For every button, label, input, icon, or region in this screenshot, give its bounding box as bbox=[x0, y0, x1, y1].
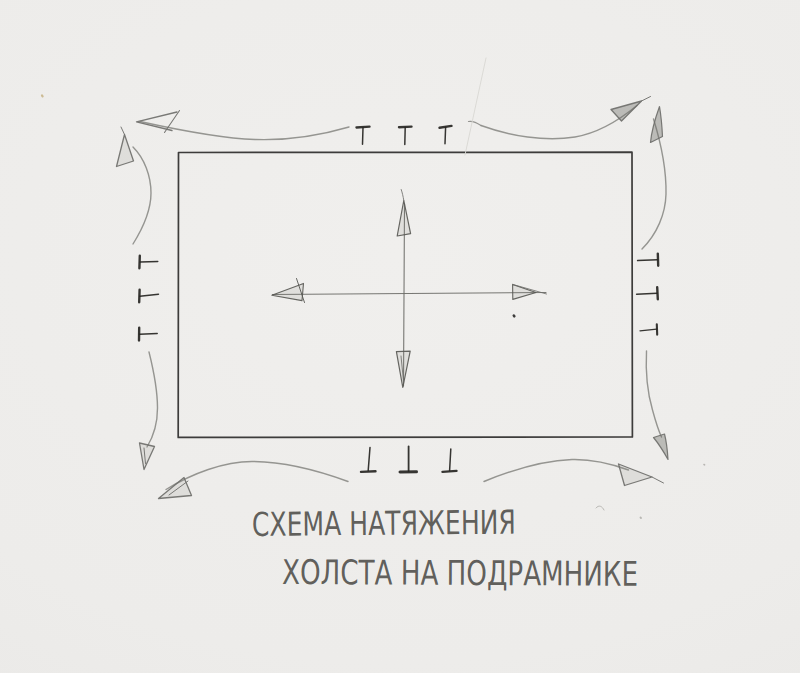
arrowhead-bottom-left-horizontal bbox=[159, 478, 192, 499]
arrowhead-top-left-vertical-flick bbox=[121, 127, 125, 135]
center-arrow-up-head bbox=[397, 201, 410, 237]
canvas-outline bbox=[178, 152, 632, 437]
paper-scratch bbox=[465, 58, 486, 155]
caption-line-1: СХЕМА НАТЯЖЕНИЯ bbox=[252, 503, 516, 544]
paper-speck-tan bbox=[42, 96, 43, 97]
arrowhead-bottom-right-vertical bbox=[654, 434, 669, 460]
tack-right-1-shaft bbox=[638, 260, 658, 261]
center-arrow-up-flick bbox=[401, 190, 404, 201]
curve-bottom-right-vertical bbox=[646, 351, 661, 437]
tack-bottom-1-shaft bbox=[368, 448, 370, 471]
arrowhead-top-right-vertical bbox=[651, 107, 663, 143]
tack-top-1-shaft bbox=[363, 128, 364, 145]
curve-top-left-vertical bbox=[133, 147, 151, 244]
arrowhead-bottom-left-vertical bbox=[140, 443, 155, 470]
tack-bottom-3-head bbox=[443, 471, 457, 472]
scanned-paper-sheet: СХЕМА НАТЯЖЕНИЯ ХОЛСТА НА ПОДРАМНИКЕ bbox=[0, 0, 800, 673]
arrowhead-bottom-right-horizontal bbox=[619, 464, 653, 486]
tack-top-3-shaft bbox=[445, 127, 446, 144]
arrowhead-top-right-horizontal bbox=[611, 101, 642, 121]
tack-left-3-shaft bbox=[140, 334, 158, 335]
arrowhead-bottom-right-horizontal-extension bbox=[652, 477, 664, 483]
arrowhead-top-right-horizontal-extension bbox=[642, 97, 651, 102]
caption-line-2: ХОЛСТА НА ПОДРАМНИКЕ bbox=[282, 552, 638, 594]
curve-bottom-left-vertical bbox=[147, 352, 158, 447]
curve-top-right-horizontal-tail bbox=[469, 121, 482, 125]
tack-right-3-shaft bbox=[640, 329, 657, 331]
center-line-horizontal bbox=[273, 293, 547, 295]
canvas-stretching-diagram: СХЕМА НАТЯЖЕНИЯ ХОЛСТА НА ПОДРАМНИКЕ bbox=[0, 0, 800, 673]
curve-bottom-right-horizontal bbox=[484, 459, 629, 481]
arrowhead-top-left-vertical bbox=[117, 135, 134, 167]
caption: СХЕМА НАТЯЖЕНИЯ ХОЛСТА НА ПОДРАМНИКЕ bbox=[252, 503, 638, 594]
pencil-stroke-layer bbox=[42, 58, 705, 518]
curve-bottom-left-horizontal bbox=[166, 462, 348, 490]
center-dot bbox=[514, 316, 515, 317]
paper-speck-squiggle bbox=[596, 506, 604, 510]
tack-bottom-3-shaft bbox=[450, 449, 451, 471]
tack-left-2-shaft bbox=[140, 294, 159, 296]
tack-bottom-1-head bbox=[361, 471, 376, 472]
tack-left-1-shaft bbox=[140, 261, 158, 262]
tack-right-2-shaft bbox=[637, 293, 657, 294]
center-arrow-right-head bbox=[513, 284, 536, 299]
paper-speck-dot-1 bbox=[641, 518, 642, 519]
